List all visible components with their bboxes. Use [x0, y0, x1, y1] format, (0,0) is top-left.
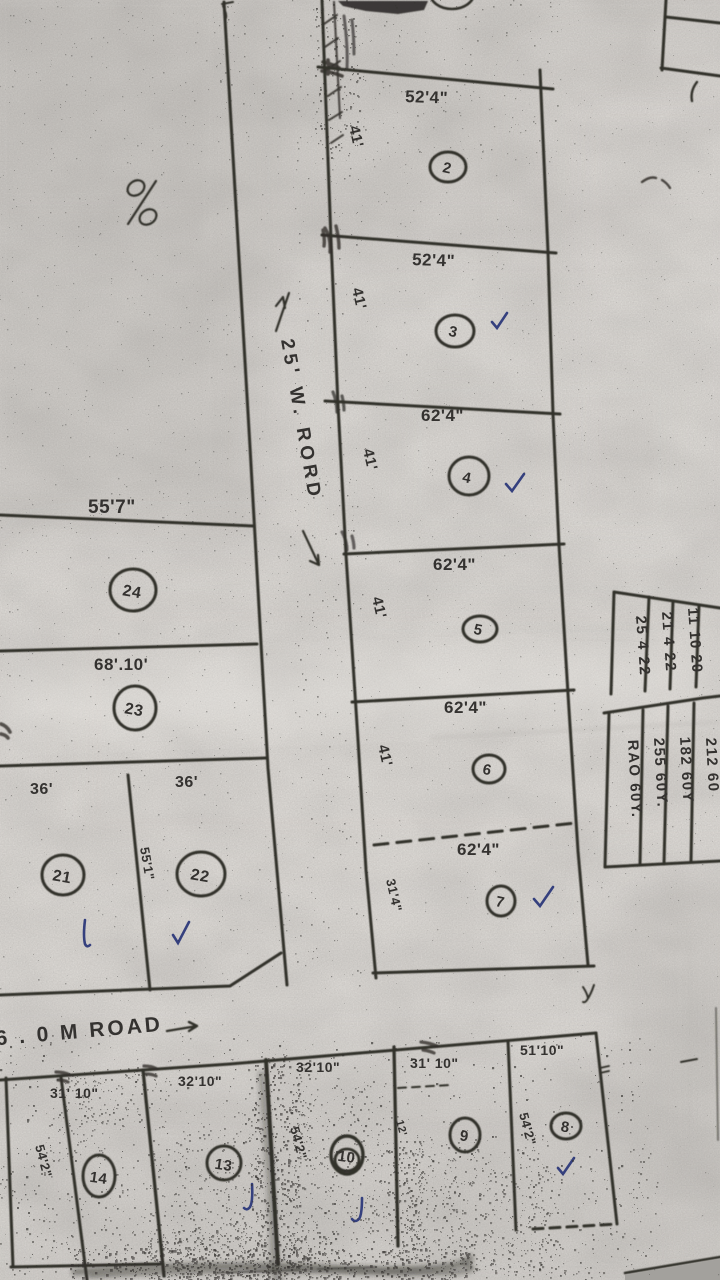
svg-text:212 60: 212 60: [702, 737, 720, 793]
svg-text:14: 14: [89, 1169, 109, 1188]
svg-text:62'4": 62'4": [444, 698, 487, 717]
svg-text:22: 22: [189, 866, 210, 886]
svg-text:21: 21: [51, 867, 72, 887]
svg-text:182 60Y: 182 60Y: [676, 736, 696, 803]
svg-text:36': 36': [175, 774, 198, 791]
svg-text:62'4": 62'4": [433, 555, 476, 574]
svg-text:32'10": 32'10": [178, 1073, 222, 1089]
svg-text:62'4": 62'4": [457, 840, 500, 859]
svg-text:13: 13: [214, 1156, 234, 1175]
svg-text:10: 10: [337, 1148, 357, 1167]
svg-text:52'4": 52'4": [405, 87, 449, 107]
svg-text:52'4": 52'4": [412, 250, 456, 270]
svg-text:36': 36': [30, 781, 53, 798]
svg-text:23: 23: [123, 700, 144, 720]
svg-text:68'.10': 68'.10': [94, 655, 148, 674]
svg-text:31' 10": 31' 10": [410, 1055, 459, 1071]
svg-text:55'7": 55'7": [88, 497, 136, 518]
svg-text:24: 24: [121, 582, 142, 602]
svg-text:62'4": 62'4": [421, 406, 464, 425]
svg-text:32'10": 32'10": [296, 1059, 340, 1075]
